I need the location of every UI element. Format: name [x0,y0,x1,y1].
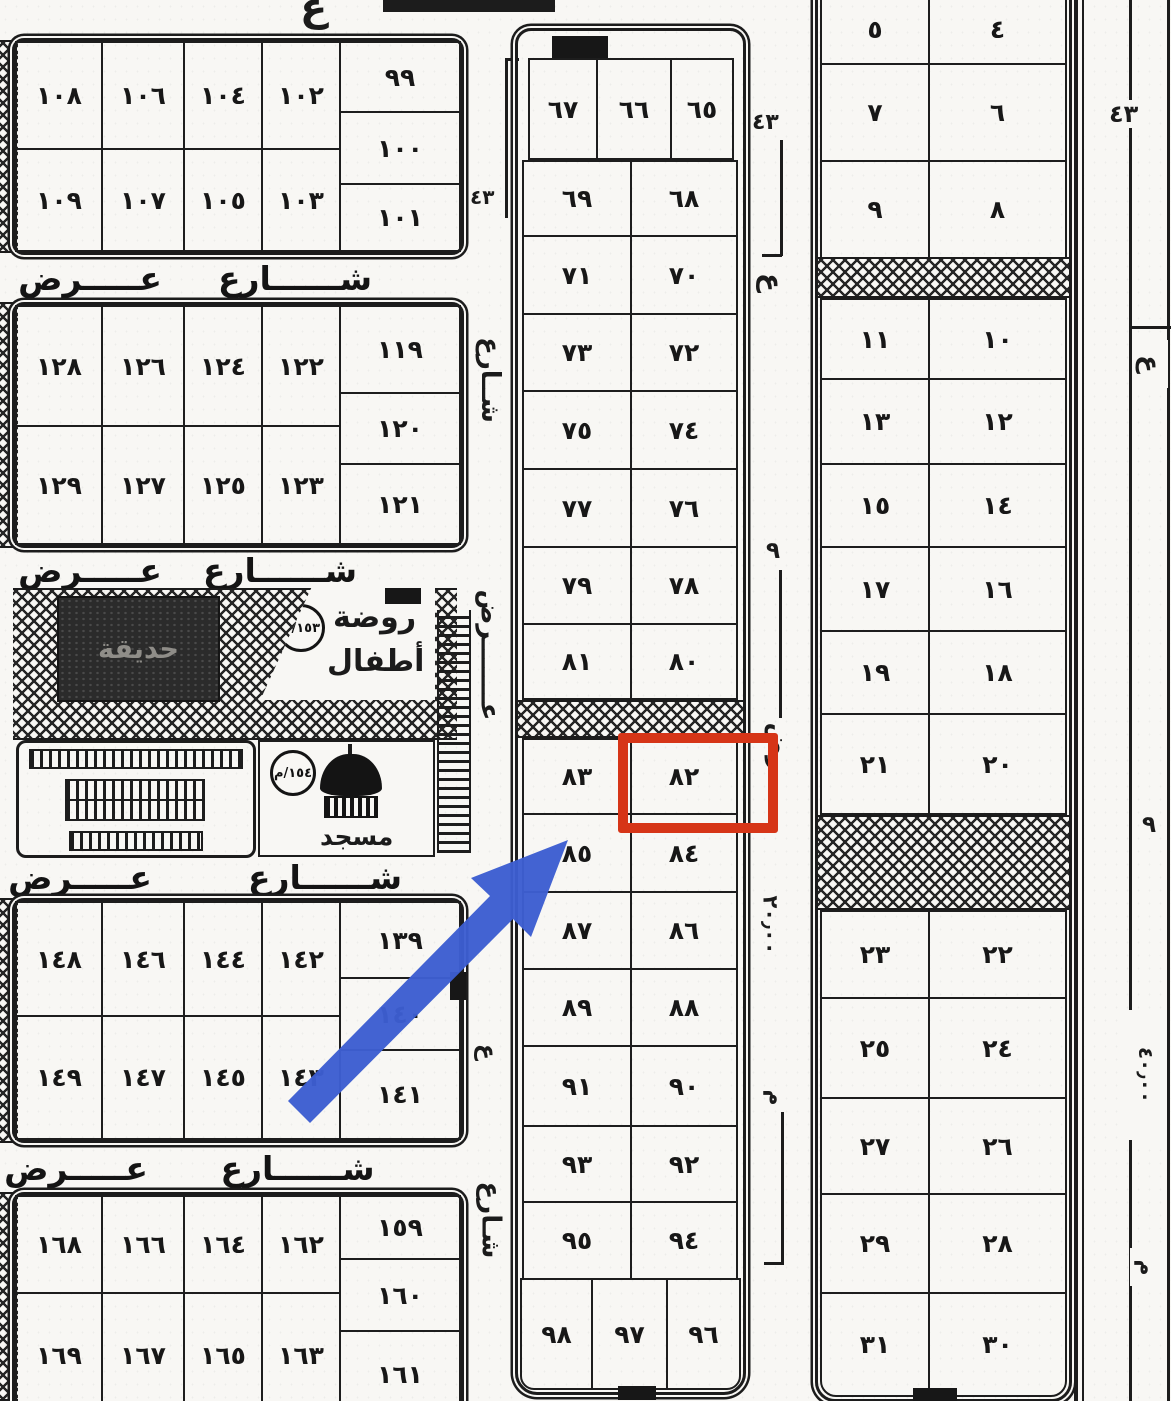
plot-map: ع ١٠٨ ١٠٦ ١٠٤ ١٠٢ ٩٩ ١٠٠ ١٠١ ١٠٩ ١٠٧ ١٠٥… [0,0,1171,1401]
pointer-arrow [0,0,1171,1401]
